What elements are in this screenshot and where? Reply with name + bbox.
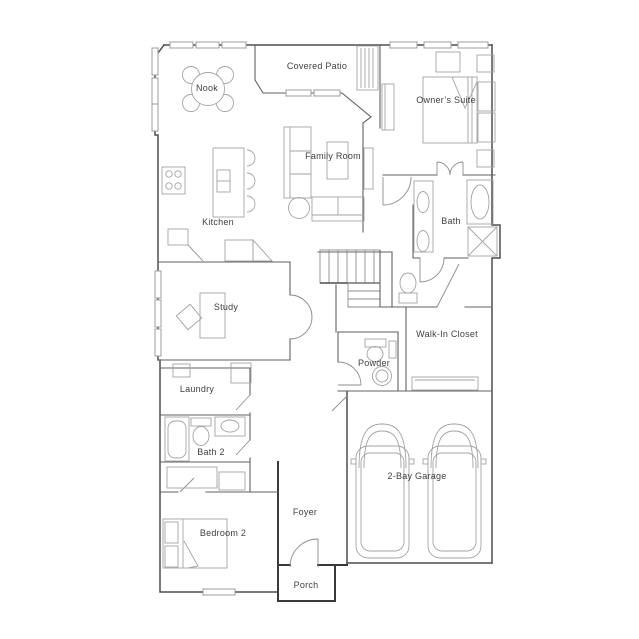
room-label-kitchen: Kitchen <box>202 217 234 227</box>
car-icon <box>351 424 414 558</box>
room-label-walk-in-closet: Walk-In Closet <box>416 329 478 339</box>
floor-plan-drawing <box>0 0 639 639</box>
bed-icon <box>382 52 495 167</box>
windows <box>152 42 488 595</box>
room-label-family-room: Family Room <box>305 151 361 161</box>
bed-icon <box>163 519 227 568</box>
washer-dryer-icon <box>173 363 251 383</box>
interior-walls <box>158 45 495 565</box>
counter-icon <box>225 240 253 261</box>
room-label-bedroom-2: Bedroom 2 <box>200 528 246 538</box>
exterior-walls <box>155 45 500 592</box>
toilet-icon <box>191 418 211 426</box>
stairs <box>320 250 380 307</box>
kitchen-fixtures <box>162 148 272 261</box>
island-icon <box>213 148 244 217</box>
room-label-porch: Porch <box>294 580 319 590</box>
tv-console-icon <box>364 148 373 189</box>
toilet-icon <box>365 339 386 347</box>
car-icon <box>423 424 486 558</box>
desk-icon <box>176 293 225 338</box>
room-label-laundry: Laundry <box>180 384 214 394</box>
room-label-owners-suite: Owner’s Suite <box>416 95 475 105</box>
room-label-covered-patio: Covered Patio <box>287 61 347 71</box>
chair-icon <box>436 52 460 72</box>
dresser-icon <box>412 377 478 390</box>
room-label-powder: Powder <box>358 358 390 368</box>
closet-shelves <box>167 467 245 490</box>
room-label-nook: Nook <box>196 83 218 93</box>
grill-icon <box>357 46 378 90</box>
room-label-garage: 2-Bay Garage <box>387 471 446 481</box>
pantry-icon <box>168 229 188 245</box>
furniture <box>162 46 497 568</box>
room-label-bath: Bath <box>441 216 461 226</box>
bar-stools-icon <box>247 150 255 212</box>
room-label-study: Study <box>214 302 238 312</box>
toilet-icon <box>400 273 416 293</box>
sofa-icon <box>284 127 373 221</box>
sink-icon <box>373 367 392 386</box>
room-label-bath-2: Bath 2 <box>197 447 225 457</box>
stove-icon <box>162 167 185 194</box>
room-label-foyer: Foyer <box>293 507 317 517</box>
desk-chair-icon <box>176 304 201 329</box>
floor-plan: Nook Covered Patio Owner’s Suite Family … <box>0 0 639 639</box>
